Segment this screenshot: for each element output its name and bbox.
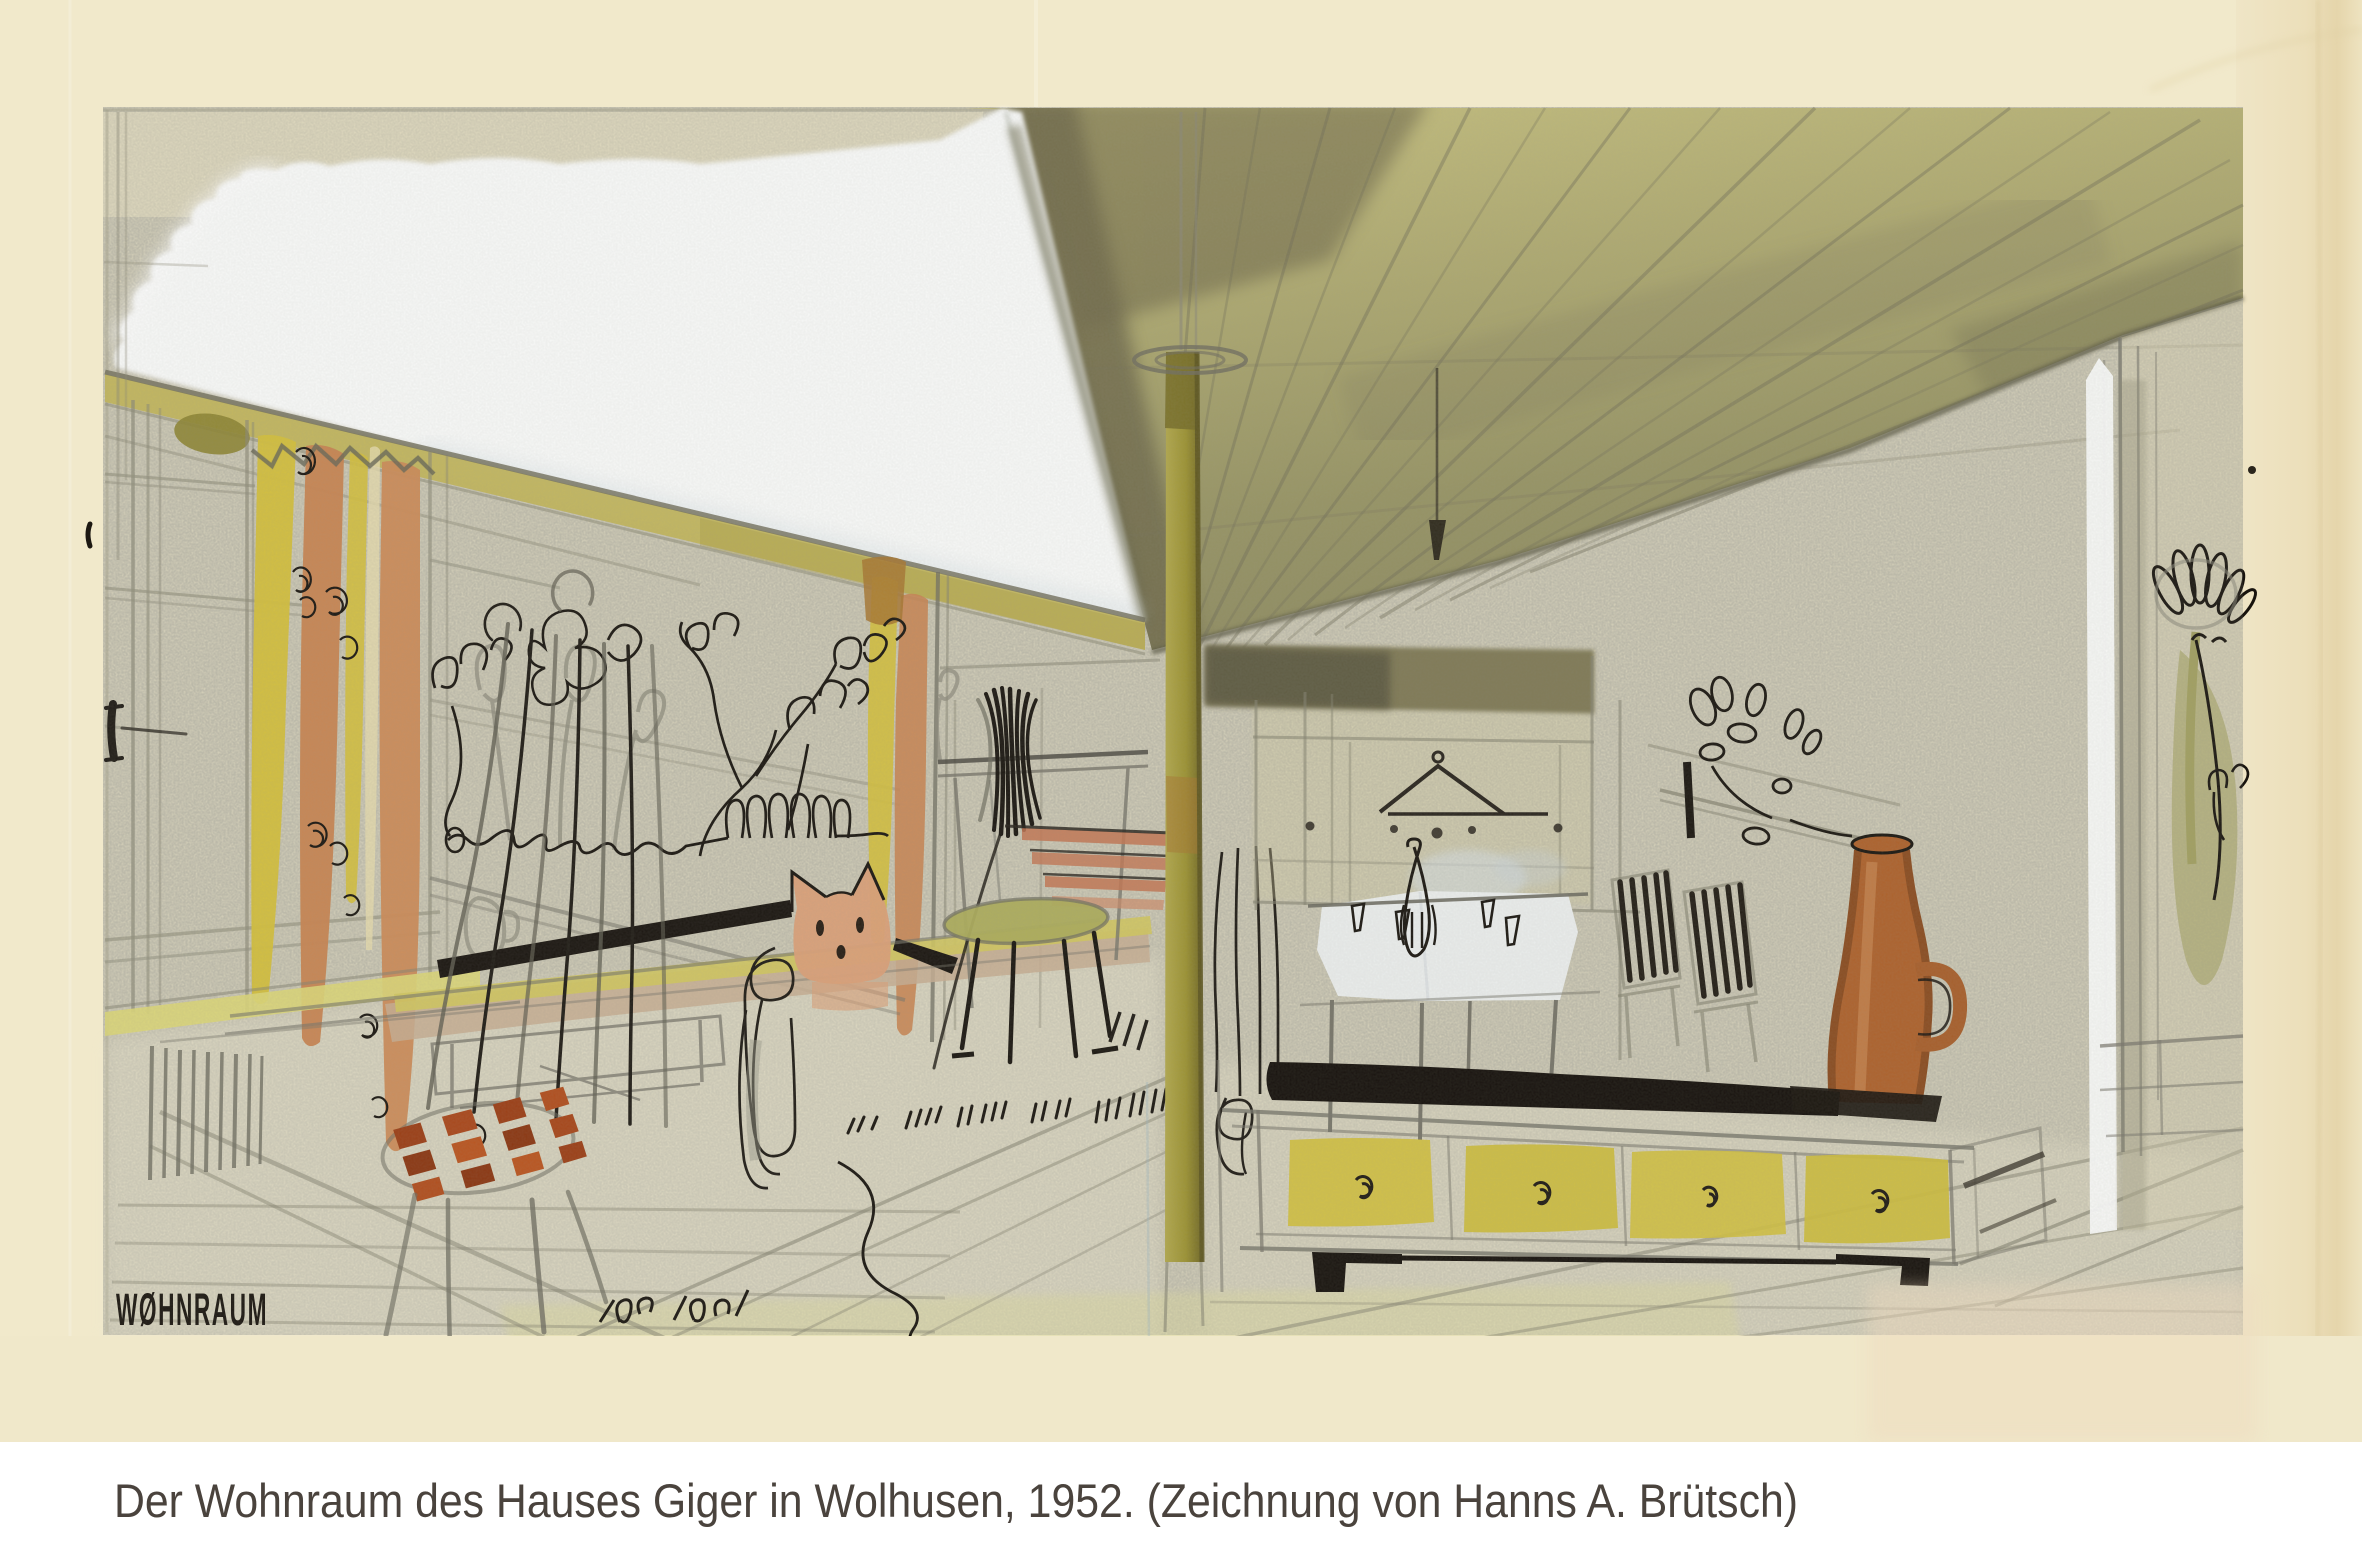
svg-text:Der Wohnraum des Hauses Giger: Der Wohnraum des Hauses Giger in Wolhuse… [114,1474,1798,1527]
